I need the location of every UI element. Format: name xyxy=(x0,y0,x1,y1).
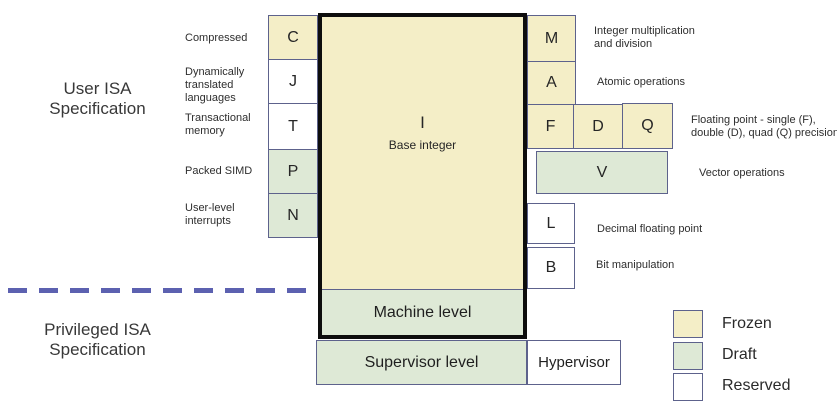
extension-letter-d: D xyxy=(592,118,604,136)
extension-label-floating-point: Floating point - single (F), double (D),… xyxy=(691,114,837,140)
extension-label-vector-operations: Vector operations xyxy=(699,167,785,180)
extension-letter-j: J xyxy=(289,73,297,91)
extension-letter-v: V xyxy=(597,164,608,182)
extension-box-a: A xyxy=(527,61,576,105)
base-sublabel: Base integer xyxy=(322,138,523,152)
extension-box-b: B xyxy=(527,247,575,289)
riscv-isa-diagram: User ISA Specification Privileged ISA Sp… xyxy=(0,0,837,412)
extension-letter-b: B xyxy=(546,259,557,277)
extension-letter-m: M xyxy=(545,30,558,48)
extension-label-decimal-floating-point: Decimal floating point xyxy=(597,223,702,236)
user-isa-title: User ISA Specification xyxy=(30,79,165,120)
base-integer-box: I Base integer Machine level xyxy=(318,13,527,339)
legend-label-frozen: Frozen xyxy=(722,315,772,333)
extension-box-c: C xyxy=(268,15,318,60)
isa-divider-dashed-line xyxy=(8,288,308,293)
legend-swatch-reserved xyxy=(673,373,703,401)
legend-label-reserved: Reserved xyxy=(722,377,790,395)
extension-box-v: V xyxy=(536,151,668,194)
extension-box-d: D xyxy=(573,104,623,149)
base-letter: I xyxy=(322,113,523,133)
extension-box-j: J xyxy=(268,59,318,104)
machine-level-box: Machine level xyxy=(322,289,523,335)
extension-box-l: L xyxy=(527,203,575,244)
extension-label-bit-manipulation: Bit manipulation xyxy=(596,259,674,272)
extension-letter-p: P xyxy=(288,163,299,181)
legend-swatch-frozen xyxy=(673,310,703,338)
legend-swatch-draft xyxy=(673,342,703,370)
extension-label-user-level-interrupts: User-level interrupts xyxy=(185,202,247,228)
extension-label-packed-simd: Packed SIMD xyxy=(185,165,252,178)
extension-box-f: F xyxy=(527,104,574,149)
extension-letter-t: T xyxy=(288,118,298,136)
machine-level-label: Machine level xyxy=(374,304,472,322)
extension-letter-n: N xyxy=(287,207,299,225)
extension-label-compressed: Compressed xyxy=(185,32,247,45)
extension-box-m: M xyxy=(527,15,576,62)
hypervisor-label: Hypervisor xyxy=(538,354,610,371)
extension-box-t: T xyxy=(268,103,318,150)
extension-box-p: P xyxy=(268,149,318,194)
extension-label-transactional-memory: Transactional memory xyxy=(185,112,273,138)
extension-letter-l: L xyxy=(547,215,556,233)
legend-label-draft: Draft xyxy=(722,346,757,364)
extension-label-atomic-operations: Atomic operations xyxy=(597,76,685,89)
extension-box-q: Q xyxy=(622,103,673,149)
hypervisor-box: Hypervisor xyxy=(527,340,621,385)
extension-letter-c: C xyxy=(287,29,299,47)
supervisor-level-box: Supervisor level xyxy=(316,340,527,385)
extension-letter-a: A xyxy=(546,74,557,92)
extension-label-dynamically-translated: Dynamically translated languages xyxy=(185,66,260,105)
privileged-isa-title: Privileged ISA Specification xyxy=(25,320,170,361)
extension-letter-f: F xyxy=(546,118,556,136)
extension-label-integer-multiplication: Integer multiplication and division xyxy=(594,25,724,51)
extension-letter-q: Q xyxy=(641,117,653,135)
extension-box-n: N xyxy=(268,193,318,238)
supervisor-level-label: Supervisor level xyxy=(365,354,479,372)
